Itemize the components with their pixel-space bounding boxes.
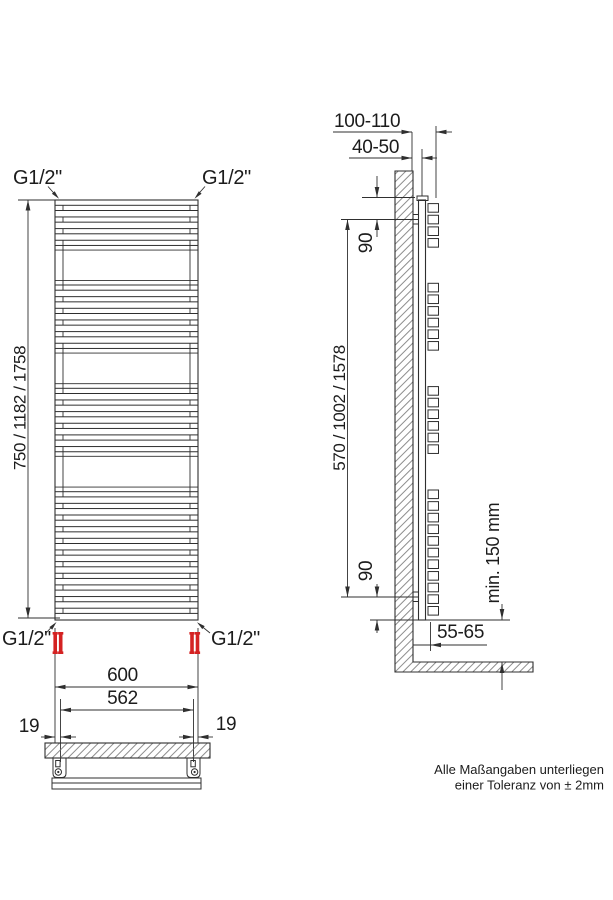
tube-cross-sections xyxy=(428,204,439,615)
connection-bottom-left-label: G1/2" xyxy=(2,628,51,650)
valve-right xyxy=(189,632,200,654)
dimension-wall-distance: 40-50 xyxy=(349,137,437,196)
mount-offset-right-label: 19 xyxy=(216,714,237,735)
mount-offset-left-label: 19 xyxy=(19,716,40,737)
bracket-top-offset-label: 90 xyxy=(356,233,377,254)
dimension-mount-offset-right: 19 xyxy=(179,714,236,739)
floor-clearance-label: min. 150 mm xyxy=(483,503,503,604)
mounting-bracket-left xyxy=(53,758,66,778)
tolerance-note-line1: Alle Maßangaben unterliegen xyxy=(434,762,604,777)
radiator-crossbars xyxy=(55,205,198,613)
bracket-spacing-label: 570 / 1002 / 1578 xyxy=(330,345,349,471)
mount-spacing-label: 562 xyxy=(107,688,138,709)
front-view: 750 / 1182 / 1758 G1/2" G1/2" G1/2" G1/2… xyxy=(2,167,260,762)
overall-height-label: 750 / 1182 / 1758 xyxy=(11,346,30,470)
mounting-bracket-right xyxy=(187,758,200,778)
dimension-overall-width: 600 xyxy=(55,665,198,689)
connection-labels-bottom: G1/2" G1/2" xyxy=(2,622,260,650)
dimension-bottom-connection-depth: 55-65 xyxy=(413,622,487,651)
collector-side-profile xyxy=(419,200,426,620)
valve-left xyxy=(53,632,64,654)
dimension-mount-offset-left: 19 xyxy=(19,716,76,739)
side-view: 100-110 40-50 90 570 / 1002 / 1578 xyxy=(330,111,533,690)
radiator-dimension-drawing: 750 / 1182 / 1758 G1/2" G1/2" G1/2" G1/2… xyxy=(0,0,613,900)
tolerance-note-line2: einer Toleranz von ± 2mm xyxy=(455,778,604,793)
radiator-front-outline xyxy=(55,200,198,620)
wall-distance-label: 40-50 xyxy=(352,137,399,158)
dimension-overall-height: 750 / 1182 / 1758 xyxy=(11,200,61,618)
wall-section xyxy=(45,743,210,758)
technical-drawing-page: 750 / 1182 / 1758 G1/2" G1/2" G1/2" G1/2… xyxy=(0,0,613,900)
connection-top-left-label: G1/2" xyxy=(13,167,62,189)
connection-bottom-right-label: G1/2" xyxy=(211,628,260,650)
bottom-section-view xyxy=(45,743,210,789)
bottom-connection-depth-label: 55-65 xyxy=(437,622,484,643)
radiator-towel-gaps xyxy=(55,245,198,491)
tolerance-note: Alle Maßangaben unterliegen einer Tolera… xyxy=(434,762,604,793)
dimension-mount-spacing: 562 xyxy=(61,688,194,712)
total-depth-label: 100-110 xyxy=(334,111,400,132)
overall-width-label: 600 xyxy=(107,665,138,686)
dimension-bracket-spacing: 570 / 1002 / 1578 xyxy=(330,220,350,598)
bracket-bottom-offset-label: 90 xyxy=(356,561,377,582)
connection-top-right-label: G1/2" xyxy=(202,167,251,189)
connection-labels-top: G1/2" G1/2" xyxy=(13,167,251,199)
radiator-tube-top-view xyxy=(52,778,201,789)
